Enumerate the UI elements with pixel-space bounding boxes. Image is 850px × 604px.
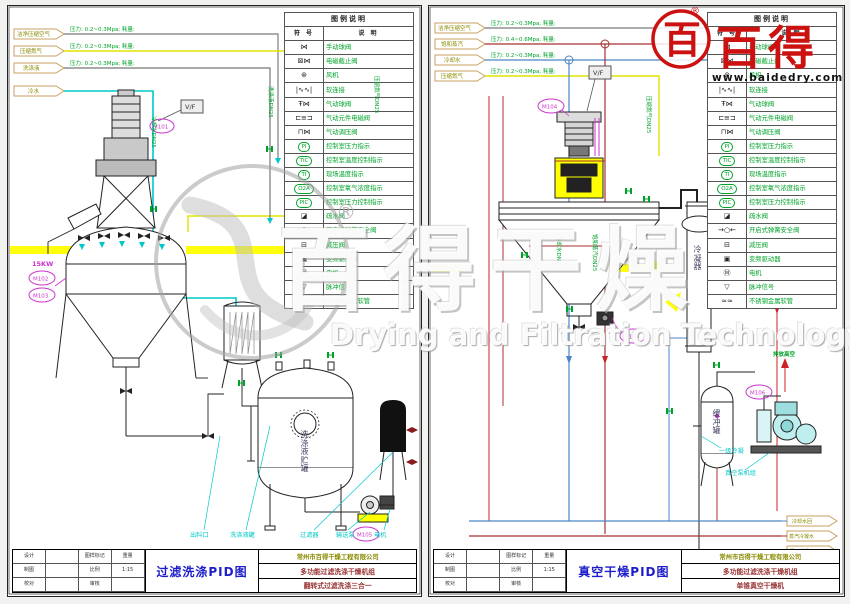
svg-text:冷却水回: 冷却水回 [792,518,812,525]
legend-row: Ŧ⋈气动球阀 [708,97,837,111]
legend-row: ≈≈不锈钢金属软管 [285,294,414,308]
legend-row: ⊏≡⊐气动元件电磁阀 [285,111,414,125]
svg-text:压力: 0.2~0.3Mpa; 耗量:: 压力: 0.2~0.3Mpa; 耗量: [491,51,556,59]
cartridge-filter [380,400,418,480]
legend-row: ⊓⋈气动调压阀 [285,125,414,139]
logo-registered-mark: ® [690,6,700,17]
product-name: 多功能过滤洗涤干燥机组 [682,564,839,578]
legend-row: PI控制室压力指示 [708,139,837,153]
power-label: 15KW [32,260,53,268]
svg-text:饱和蒸汽: 饱和蒸汽 [441,40,464,48]
legend-row: PIC控制室压力控制指示 [285,196,414,210]
legend-row: →○←开启式弹簧安全阀 [708,224,837,238]
svg-text:百: 百 [663,18,701,62]
baide-seal-icon: 百 [650,6,712,70]
svg-text:M105: M105 [624,335,640,341]
legend-row: O2A控制室氧气浓度指示 [708,182,837,196]
svg-text:压力: 0.2~0.3Mpa; 耗量:: 压力: 0.2~0.3Mpa; 耗量: [70,42,135,50]
legend-table: 图例说明 符 号说 明 ⋈手动球阀 ⊠⋈电磁截止阀 ⊛风机 |∿∿|软连接 Ŧ⋈… [284,12,414,309]
legend-row: O2A控制室氧气浓度指示 [285,182,414,196]
pipe-label: 压缩氮气DN25 [373,76,381,113]
svg-text:M103: M103 [33,294,49,300]
legend-row: PI控制室压力指示 [285,139,414,153]
title-block-grid: 设计图样标记重量 制图比例1:15 校对审核 [434,550,566,592]
svg-text:压力: 0.2~0.3Mpa; 耗量:: 压力: 0.2~0.3Mpa; 耗量: [70,25,135,33]
vacuum-pump-unit [751,358,821,453]
equip-label: 过滤器 [300,530,319,539]
svg-text:冷却水: 冷却水 [444,56,461,64]
utility-tag-nitrogen: 压缩氮气 压力: 0.2~0.3Mpa; 耗量: [435,67,659,156]
svg-text:压缩氮气: 压缩氮气 [20,47,43,55]
logo-website-url: www.baidedry.com [712,72,843,84]
legend-row: ◪疏水阀 [708,210,837,224]
legend-row: ⊓⋈气动调压阀 [708,125,837,139]
legend-row: TI现场温度指示 [708,168,837,182]
company-name: 常州市百得干燥工程有限公司 [259,550,416,564]
svg-text:V/F: V/F [593,69,604,77]
svg-text:M105: M105 [357,533,373,539]
sheet-filter-washing-pid: 洁净压缩空气 压力: 0.2~0.3Mpa; 耗量: 压缩氮气 压力: 0.2~… [7,5,422,597]
svg-text:洁净压缩空气: 洁净压缩空气 [438,24,472,32]
pump-unit-label: 真空泵机组 [725,468,756,477]
equip-label: 出料口 [190,530,209,539]
vfd-box: V/F [587,66,611,111]
drawing-title: 过滤洗涤PID图 [156,563,247,580]
svg-text:压缩氮气: 压缩氮气 [441,72,464,80]
condenser-vertical-label: 冷凝器 [693,246,702,272]
legend-row: ▽脉冲信号 [708,280,837,294]
svg-text:压力: 0.2~0.3Mpa; 耗量:: 压力: 0.2~0.3Mpa; 耗量: [70,59,135,67]
actuator-lines [595,118,599,156]
legend-row: ⊏≡⊐气动元件电磁阀 [708,111,837,125]
vfd-box: V/F [158,100,203,121]
pipe-label: 冷却水DN25 [150,116,158,148]
svg-text:M104: M104 [542,105,558,111]
legend-row: ▣变频驱动器 [285,252,414,266]
model-name: 翻转式过滤洗涤三合一 [259,579,416,592]
buffer-vertical-label: 缓冲罐 [712,410,721,436]
vent-label: 排放高空 [773,350,795,358]
legend-row: ⊟减压阀 [708,238,837,252]
svg-text:压力: 0.2~0.3Mpa; 耗量:: 压力: 0.2~0.3Mpa; 耗量: [491,19,556,27]
title-block: 设计图样标记重量 制图比例1:15 校对审核 真空干燥PID图 常州市百得干燥工… [433,549,840,593]
legend-row: |∿∿|软连接 [285,83,414,97]
baide-logo: 百 ® 百得 www.baidedry.com [650,6,850,98]
legend-row: PIC控制室压力控制指示 [708,196,837,210]
outlet-tag-condensate: 蒸汽冷凝水 [781,531,837,541]
condenser-stage-label: 一级冷凝 [719,446,744,455]
legend-row: ▣变频驱动器 [708,252,837,266]
svg-text:压力: 0.2~0.3Mpa; 耗量:: 压力: 0.2~0.3Mpa; 耗量: [491,67,556,75]
product-name: 多功能过滤洗涤干燥机组 [259,564,416,578]
legend-row: ⊟减压阀 [285,238,414,252]
svg-text:洁净压缩空气: 洁净压缩空气 [17,30,51,38]
legend-row: ▽脉冲信号 [285,280,414,294]
svg-text:M102: M102 [33,277,48,283]
heat-exchanger [222,302,262,391]
filter-dryer-vessel [56,90,196,436]
pipe-label: 饱和蒸汽DN25 [591,234,599,271]
svg-text:M106: M106 [750,391,766,397]
motor-tag-m102: M102 [29,271,55,285]
legend-row: ⊠⋈电磁截止阀 [285,55,414,69]
pipe-label: 压缩氮气DN25 [645,96,653,133]
title-block: 设计图样标记重量 制图比例1:15 校对审核 过滤洗涤PID图 常州市百得干燥工… [12,549,417,593]
discharge-tag-m105: M105 [613,318,646,343]
logo-brand-name: 百得 [716,12,820,78]
legend-row: ◪疏水阀 [285,210,414,224]
svg-text:压力: 0.4~0.6Mpa; 耗量:: 压力: 0.4~0.6Mpa; 耗量: [491,35,556,43]
pipe-label: 冷却水DN25 [555,236,563,268]
legend-row: TIC控制室温度控制指示 [708,153,837,167]
legend-row: Ⓜ电机 [285,266,414,280]
legend-row: →○←开启式弹簧安全阀 [285,224,414,238]
legend-row: Ŧ⋈气动球阀 [285,97,414,111]
legend-row: Ⓜ电机 [708,266,837,280]
model-name: 单锥真空干燥机 [682,579,839,592]
svg-text:洗涤液: 洗涤液 [23,64,40,72]
svg-text:蒸汽冷凝水: 蒸汽冷凝水 [789,533,814,540]
company-name: 常州市百得干燥工程有限公司 [682,550,839,564]
legend-row: TIC控制室温度控制指示 [285,153,414,167]
tank-vertical-label: 洗涤液贮罐 [300,431,309,474]
cone-dryer-vessel [499,112,659,340]
legend-row: ⋈手动球阀 [285,41,414,55]
highlight-band [431,264,463,272]
pump-tag-m106: M106 [746,385,772,399]
outlet-tag-cooling-return: 冷却水回 [781,516,837,526]
legend-row: ≈≈不锈钢金属软管 [708,294,837,308]
highlight-arrow [653,260,667,276]
pipe-label: 洗涤液DN25 [267,86,275,118]
drawing-title: 真空干燥PID图 [578,563,669,580]
equip-label: 洗涤液罐 [230,530,255,539]
highlight-blob [665,292,681,312]
equip-label: 电机 [374,530,386,539]
transfer-pump [358,452,394,522]
svg-text:冷水: 冷水 [28,87,40,95]
legend-row: ⊛风机 [285,69,414,83]
title-block-grid: 设计图样标记重量 制图比例1:15 校对审核 [13,550,145,592]
equip-label: 输送泵 [336,530,355,539]
legend-row: TI现场温度指示 [285,168,414,182]
svg-text:V/F: V/F [185,103,196,111]
